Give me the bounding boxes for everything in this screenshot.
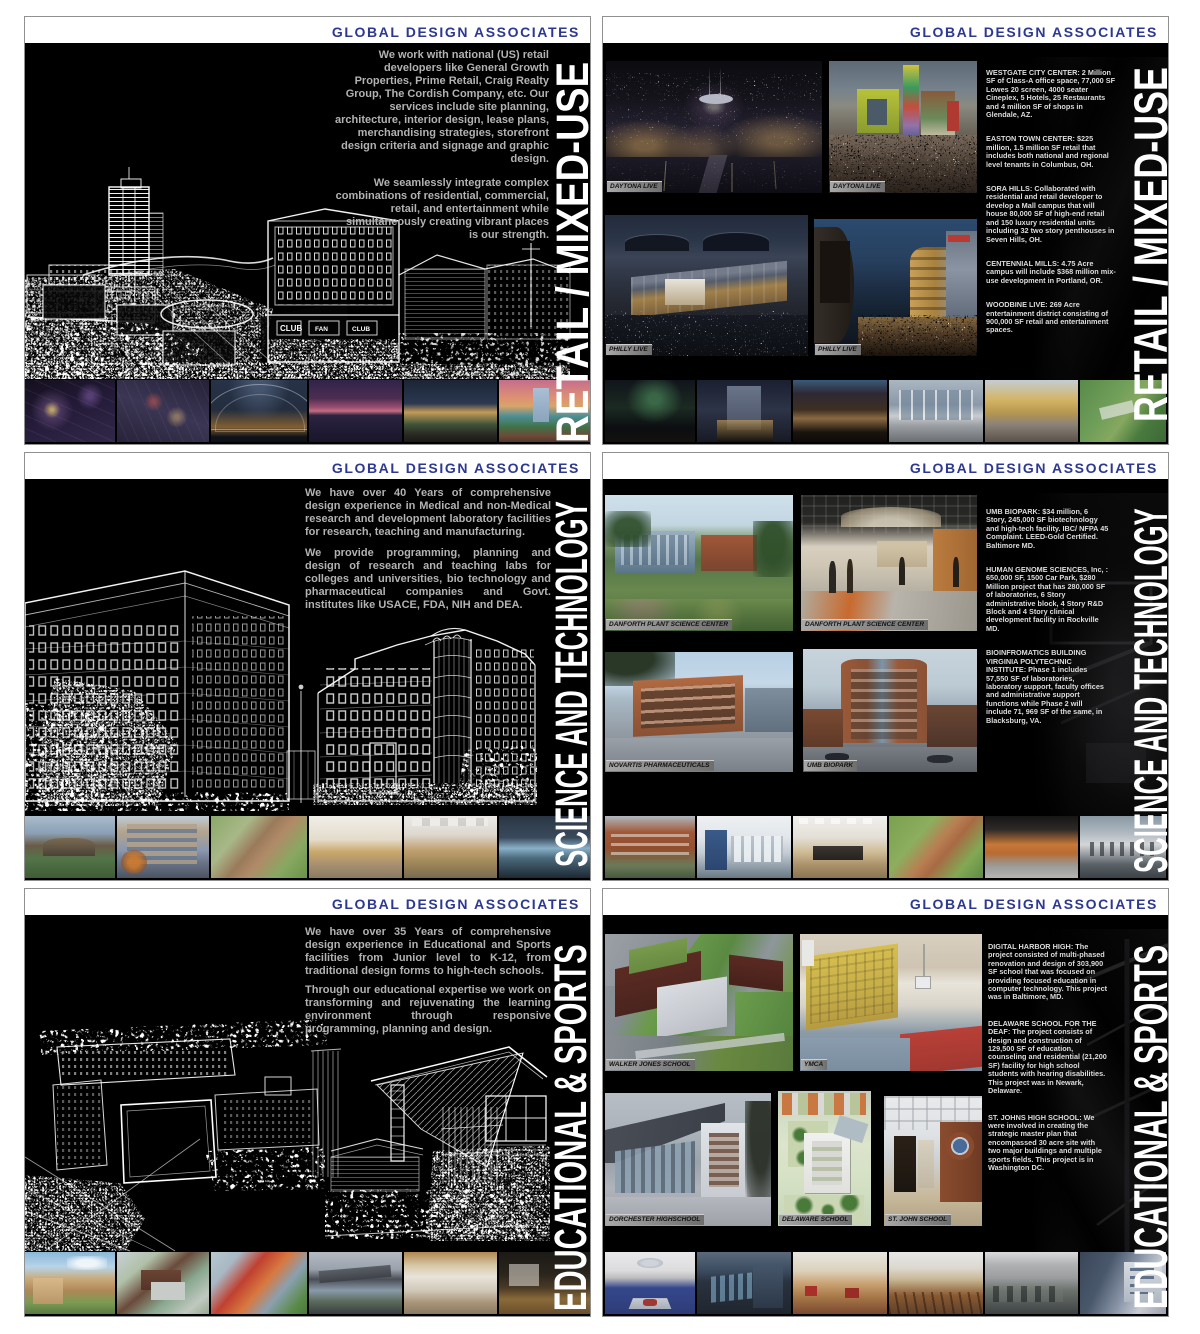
svg-text:FAN: FAN [315, 326, 328, 333]
svg-text:CLUB: CLUB [352, 326, 370, 333]
svg-text:CLUB: CLUB [280, 324, 302, 333]
